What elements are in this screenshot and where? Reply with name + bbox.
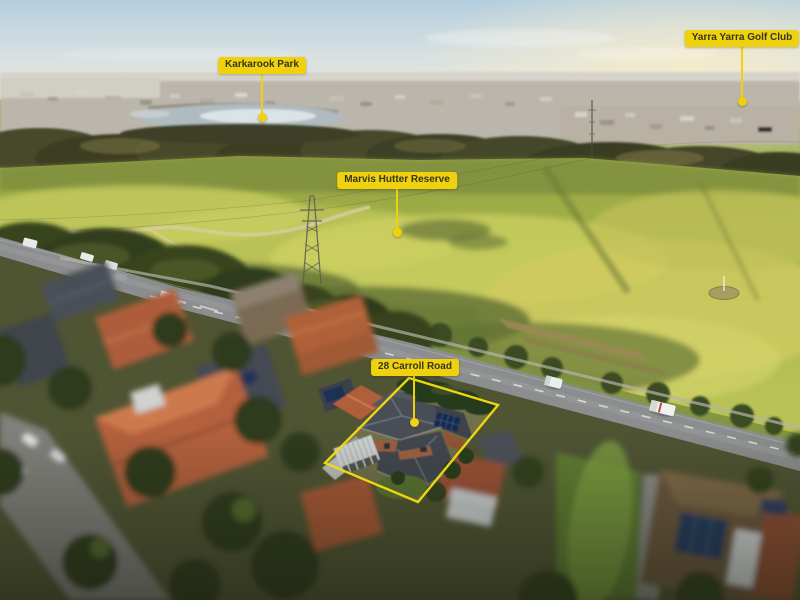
foreground-shade — [0, 430, 800, 600]
aerial-photo: Karkarook Park Yarra Yarra Golf Club Mar… — [0, 0, 800, 600]
photo-canvas — [0, 0, 800, 600]
leader-line-yarra — [741, 44, 743, 98]
marker-dot-karkarook — [258, 113, 267, 122]
marker-dot-property — [410, 418, 419, 427]
leader-line-marvis — [396, 187, 398, 229]
marker-dot-yarra — [738, 97, 747, 106]
label-karkarook-park: Karkarook Park — [218, 57, 306, 74]
label-marvis-hutter-reserve: Marvis Hutter Reserve — [337, 172, 457, 189]
label-yarra-yarra-golf-club: Yarra Yarra Golf Club — [685, 30, 799, 47]
leader-line-karkarook — [261, 72, 263, 114]
label-28-carroll-road: 28 Carroll Road — [371, 359, 459, 376]
leader-line-property — [413, 375, 415, 419]
marker-dot-marvis — [393, 228, 402, 237]
